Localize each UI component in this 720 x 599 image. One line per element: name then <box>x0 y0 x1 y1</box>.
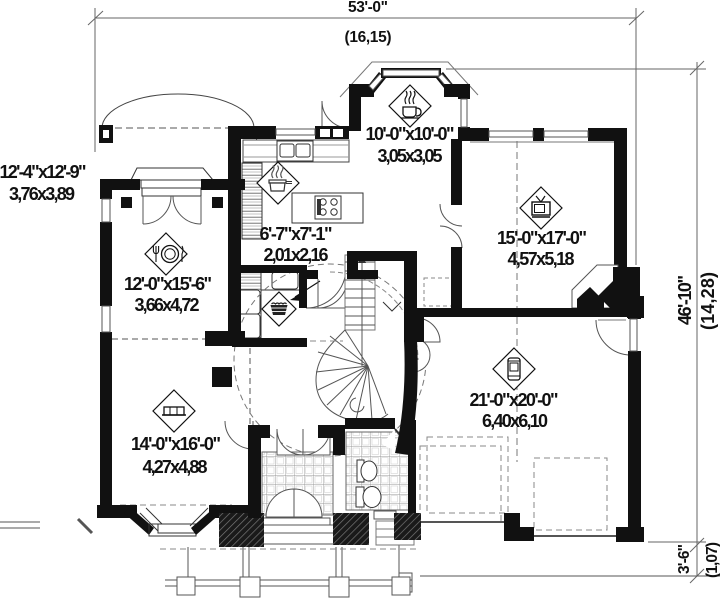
svg-text:21'-0"x20'-0": 21'-0"x20'-0" <box>470 390 559 410</box>
svg-text:(1,07): (1,07) <box>704 542 720 578</box>
svg-text:4,57x5,18: 4,57x5,18 <box>508 249 575 269</box>
svg-text:3,66x4,72: 3,66x4,72 <box>135 295 200 315</box>
svg-text:3'-6": 3'-6" <box>676 544 693 574</box>
svg-text:15'-0"x17'-0": 15'-0"x17'-0" <box>497 228 587 248</box>
svg-text:46'-10": 46'-10" <box>675 275 695 325</box>
svg-text:3,76x3,89: 3,76x3,89 <box>9 184 75 204</box>
svg-text:53'-0": 53'-0" <box>348 0 388 16</box>
svg-text:6,40x6,10: 6,40x6,10 <box>482 411 548 431</box>
svg-text:(14,28): (14,28) <box>698 272 718 330</box>
svg-text:10'-0"x10'-0": 10'-0"x10'-0" <box>366 124 455 144</box>
svg-text:6'-7"x7'-1": 6'-7"x7'-1" <box>260 224 333 244</box>
svg-text:12'-0"x15'-6": 12'-0"x15'-6" <box>124 274 212 294</box>
svg-text:3,05x3,05: 3,05x3,05 <box>378 146 443 166</box>
svg-text:12'-4"x12'-9": 12'-4"x12'-9" <box>0 162 87 182</box>
svg-text:2,01x2,16: 2,01x2,16 <box>264 245 329 265</box>
svg-text:(16,15): (16,15) <box>345 29 392 46</box>
svg-text:14'-0"x16'-0": 14'-0"x16'-0" <box>131 434 221 454</box>
svg-text:4,27x4,88: 4,27x4,88 <box>143 457 208 477</box>
